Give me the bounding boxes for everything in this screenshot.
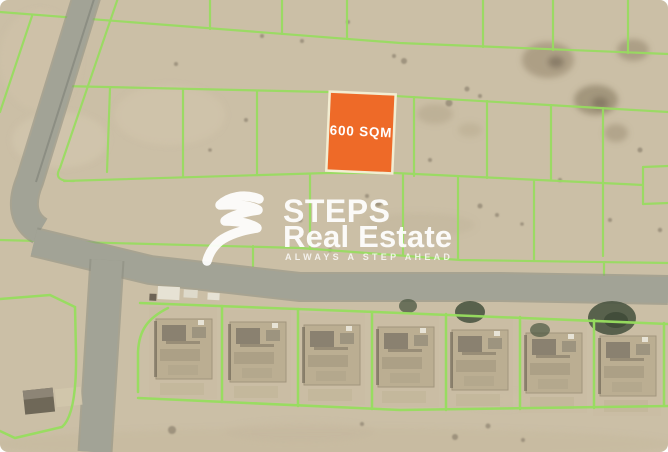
watermark-brand-line2: Real Estate	[283, 219, 452, 254]
satellite-map-image[interactable]: 600 SQM STEPS Real Estate ALWAYS A STEP …	[0, 0, 668, 452]
highlighted-plot[interactable]: 600 SQM	[326, 92, 395, 174]
watermark-tagline: ALWAYS A STEP AHEAD	[285, 252, 453, 262]
listing-photo-viewport: 600 SQM STEPS Real Estate ALWAYS A STEP …	[0, 0, 668, 452]
vertical-road	[95, 260, 107, 452]
satellite-map: 600 SQM STEPS Real Estate ALWAYS A STEP …	[0, 0, 668, 452]
plot-area-label: 600 SQM	[329, 123, 392, 141]
